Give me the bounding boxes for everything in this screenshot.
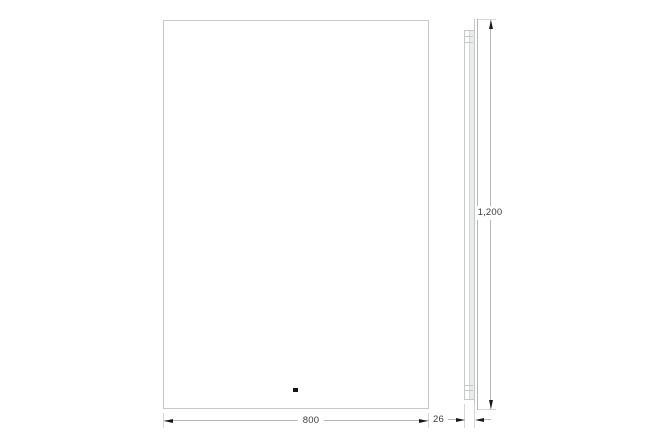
height-extension-line-bottom <box>478 409 496 410</box>
side-view-frame <box>464 30 474 400</box>
arrow-right-icon <box>419 419 428 423</box>
depth-extension-line-left <box>464 404 465 428</box>
arrow-up-icon <box>489 20 493 29</box>
frame-edge-line <box>465 36 473 37</box>
drawing-canvas: 800 1,200 26 <box>0 0 666 444</box>
front-view-mirror-outline <box>163 20 429 409</box>
frame-edge-line <box>465 385 473 386</box>
depth-dimension-line-right <box>483 419 491 420</box>
frame-edge-line <box>465 390 473 391</box>
sensor-dot <box>293 388 298 392</box>
depth-extension-line-right <box>474 404 475 428</box>
width-dimension-line <box>164 420 429 421</box>
arrow-left-icon <box>164 419 173 423</box>
arrow-left-icon <box>475 418 484 422</box>
depth-dimension-line-left <box>448 419 456 420</box>
frame-edge-line <box>465 42 473 43</box>
height-extension-line-top <box>478 19 496 20</box>
height-dimension-label: 1,200 <box>476 206 505 220</box>
depth-dimension-label: 26 <box>430 414 447 426</box>
width-dimension-label: 800 <box>298 415 324 427</box>
arrow-down-icon <box>489 400 493 409</box>
arrow-right-icon <box>456 418 465 422</box>
